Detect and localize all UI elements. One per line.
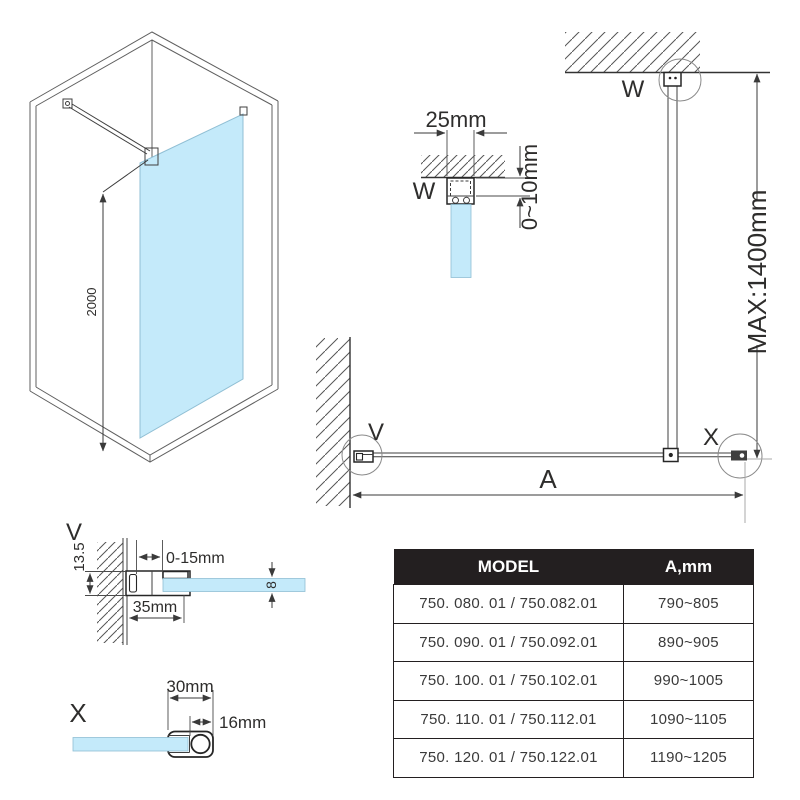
plan-wall-hatch [316,338,350,506]
page: { "colors": { "glass_fill": "#c4eafa", "… [0,0,800,800]
plan-view: W MAX:1400mm V X A [316,32,772,523]
support-bar-line2 [72,104,150,151]
detail-w-label: W [413,178,436,205]
w-gap-dim-label: 0~10mm [517,144,542,230]
table-header-row: MODEL A,mm [394,549,754,585]
spec-table: MODEL A,mm 750. 080. 01 / 750.082.01 790… [393,549,754,778]
connector-screw [669,453,673,457]
isometric-view: 2000 [30,32,278,462]
model-cell: 750. 100. 01 / 750.102.01 [394,662,624,701]
iso-height-dim-label: 2000 [84,288,99,317]
table-row: 750. 120. 01 / 750.122.01 1190~1205 [394,739,754,778]
table-row: 750. 100. 01 / 750.102.01 990~1005 [394,662,754,701]
a-mm-cell: 990~1005 [624,662,754,701]
rod-ceiling-bracket [664,73,681,87]
detail-v-section: V 13.5 0-15mm 35mm 8 [66,519,305,645]
round-bar-section [191,735,209,753]
wall-anchor-screw [66,102,70,106]
plan-w-label: W [622,76,645,103]
ceiling-hatch [421,155,505,177]
table-header-model: MODEL [394,549,624,585]
glass-clamp-cap [163,572,188,579]
v-glass-dim-label: 8 [263,581,279,589]
a-mm-cell: 1190~1205 [624,739,754,778]
support-bar-line1 [69,107,147,154]
x-bar-dim-label: 16mm [219,713,266,732]
table-row: 750. 080. 01 / 750.082.01 790~805 [394,585,754,624]
room-top-inner-edge [36,40,272,106]
plan-v-label: V [368,419,384,446]
rod-bracket-screw1 [669,77,672,80]
a-mm-cell: 790~805 [624,585,754,624]
detail-x-label: X [69,698,86,728]
glass-section-v [163,579,305,592]
model-cell: 750. 090. 01 / 750.092.01 [394,623,624,662]
a-dim-label: A [539,464,557,494]
model-cell: 750. 110. 01 / 750.112.01 [394,700,624,739]
v-adjust-dim-label: 0-15mm [166,550,225,567]
v-profile-dim-label: 35mm [133,599,177,616]
max-dim-label: MAX:1400mm [742,190,772,355]
plan-x-label: X [703,424,719,451]
plan-ceiling-hatch [565,32,700,72]
a-mm-cell: 1090~1105 [624,700,754,739]
rod-bracket-screw2 [674,77,677,80]
table-row: 750. 090. 01 / 750.092.01 890~905 [394,623,754,662]
table-header-a-mm: A,mm [624,549,754,585]
glass-section-x [73,738,188,752]
model-cell: 750. 080. 01 / 750.082.01 [394,585,624,624]
detail-v-label: V [66,519,82,546]
wall-hatch-v [97,542,123,643]
a-mm-cell: 890~905 [624,623,754,662]
table-row: 750. 110. 01 / 750.112.01 1090~1105 [394,700,754,739]
glass-panel [140,114,243,438]
glass-end-cap-plan [731,451,747,461]
detail-x-section: X 30mm 16mm [69,677,266,757]
glass-section [451,205,471,278]
model-cell: 750. 120. 01 / 750.122.01 [394,739,624,778]
x-width-dim-label: 30mm [166,677,213,696]
end-cap-screw [740,453,745,458]
v-depth-dim-label: 13.5 [71,542,88,571]
w-width-dim-label: 25mm [425,107,486,132]
support-bar-wall-anchor [63,99,72,108]
detail-w-section: 25mm W 0~10mm [413,107,542,278]
room-top-outer-edge [30,32,278,102]
